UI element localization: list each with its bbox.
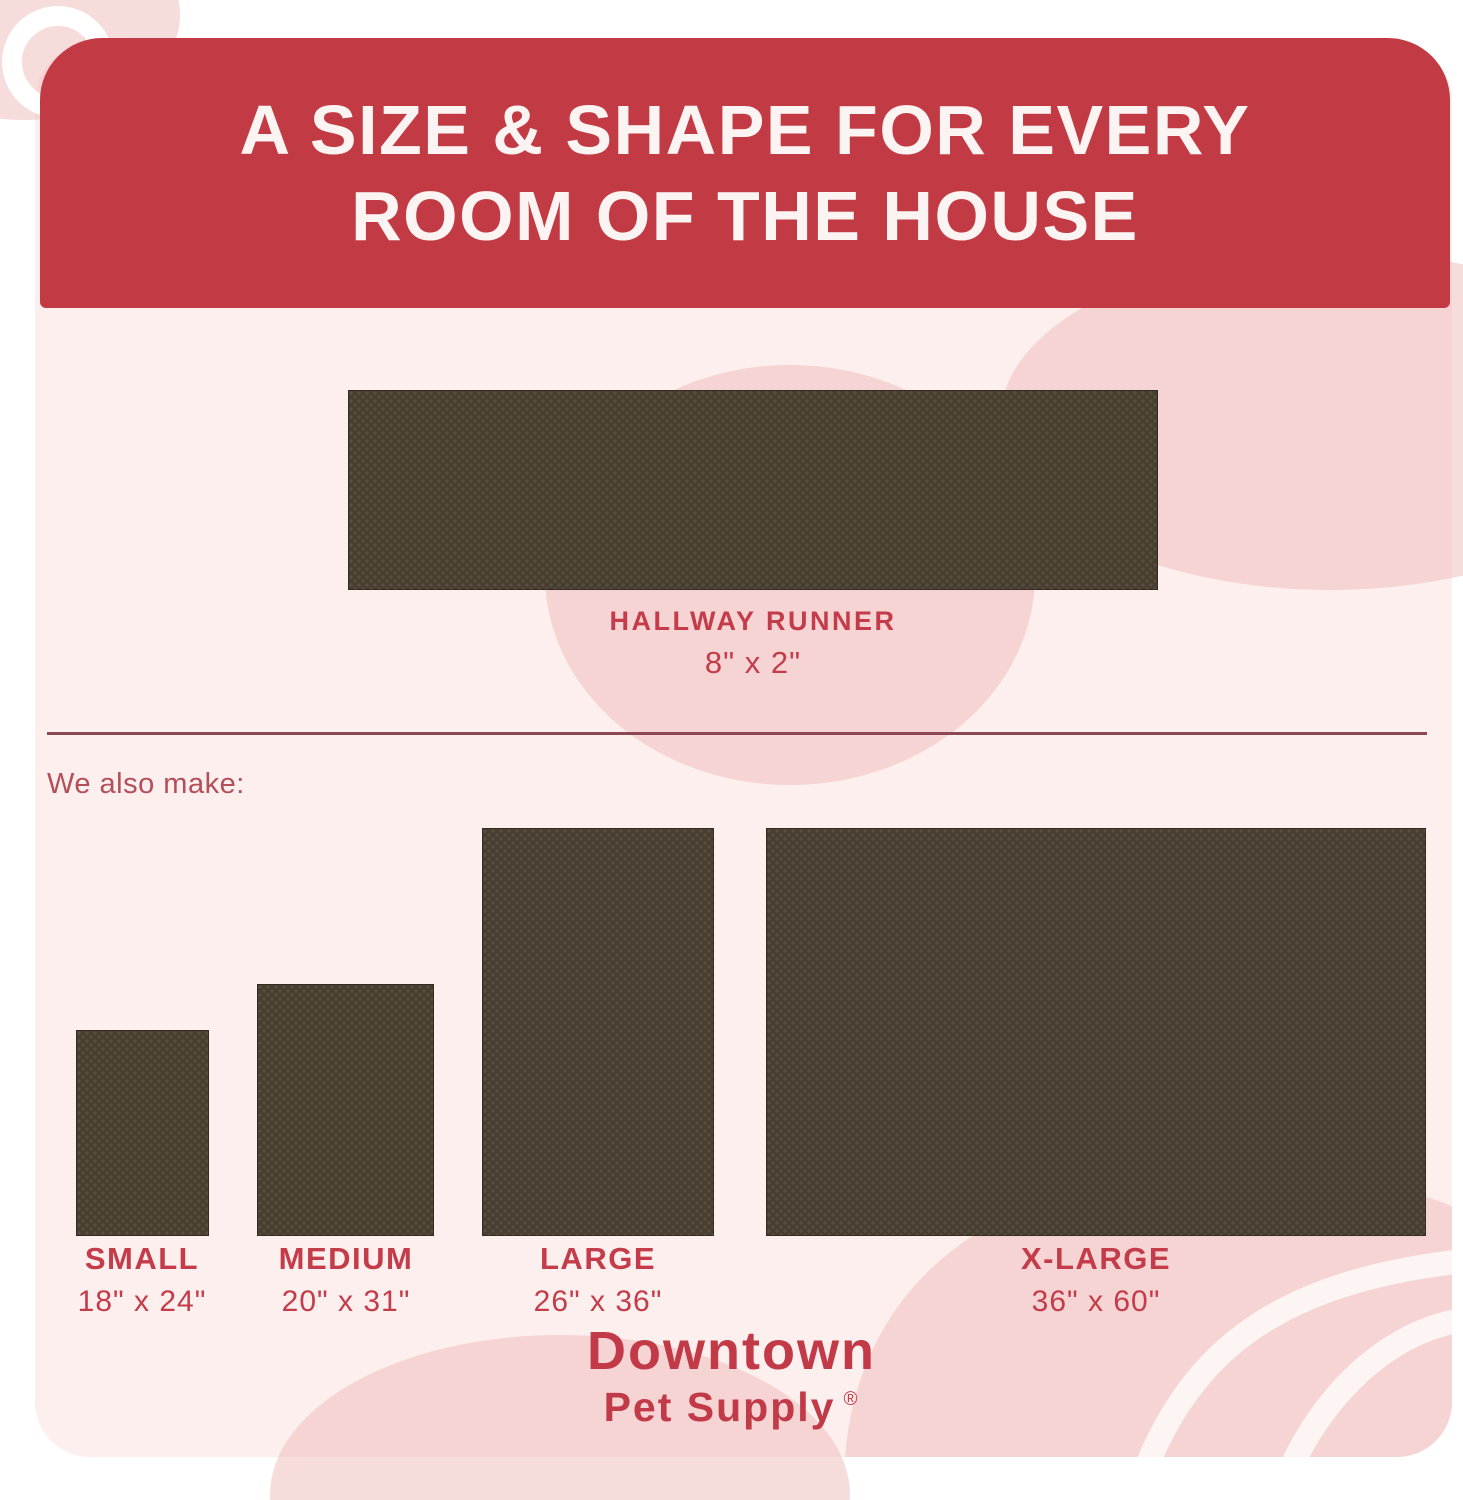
xlarge-name: X-LARGE (966, 1243, 1226, 1274)
registered-trademark-icon: ® (843, 1389, 859, 1410)
headline-line-1: A SIZE & SHAPE FOR EVERY (240, 95, 1251, 165)
divider-line (47, 732, 1427, 735)
we-also-make-label: We also make: (47, 768, 245, 801)
medium-label: MEDIUM 20" x 31" (236, 1243, 456, 1317)
medium-dimensions: 20" x 31" (236, 1287, 456, 1317)
small-label: SMALL 18" x 24" (32, 1243, 252, 1317)
xlarge-label: X-LARGE 36" x 60" (966, 1243, 1226, 1317)
xlarge-mat (766, 828, 1426, 1236)
hallway-runner-dimensions: 8" x 2" (453, 647, 1053, 678)
large-name: LARGE (488, 1243, 708, 1274)
small-dimensions: 18" x 24" (32, 1287, 252, 1317)
small-mat (76, 1030, 209, 1236)
brand-logo-sub-text: Pet Supply (604, 1384, 836, 1430)
brand-logo-name: Downtown (0, 1322, 1463, 1381)
headline-banner: A SIZE & SHAPE FOR EVERY ROOM OF THE HOU… (40, 38, 1450, 308)
large-dimensions: 26" x 36" (488, 1287, 708, 1317)
medium-mat (257, 984, 434, 1236)
brand-logo: Downtown Pet Supply® (0, 1322, 1463, 1430)
medium-name: MEDIUM (236, 1243, 456, 1274)
large-label: LARGE 26" x 36" (488, 1243, 708, 1317)
hallway-runner-label: HALLWAY RUNNER 8" x 2" (453, 608, 1053, 678)
hallway-runner-mat (348, 390, 1158, 590)
small-name: SMALL (32, 1243, 252, 1274)
hallway-runner-name: HALLWAY RUNNER (453, 608, 1053, 635)
headline-line-2: ROOM OF THE HOUSE (351, 181, 1139, 251)
brand-logo-subtitle: Pet Supply® (0, 1385, 1463, 1430)
large-mat (482, 828, 714, 1236)
infographic-canvas: A SIZE & SHAPE FOR EVERY ROOM OF THE HOU… (0, 0, 1463, 1500)
xlarge-dimensions: 36" x 60" (966, 1287, 1226, 1317)
